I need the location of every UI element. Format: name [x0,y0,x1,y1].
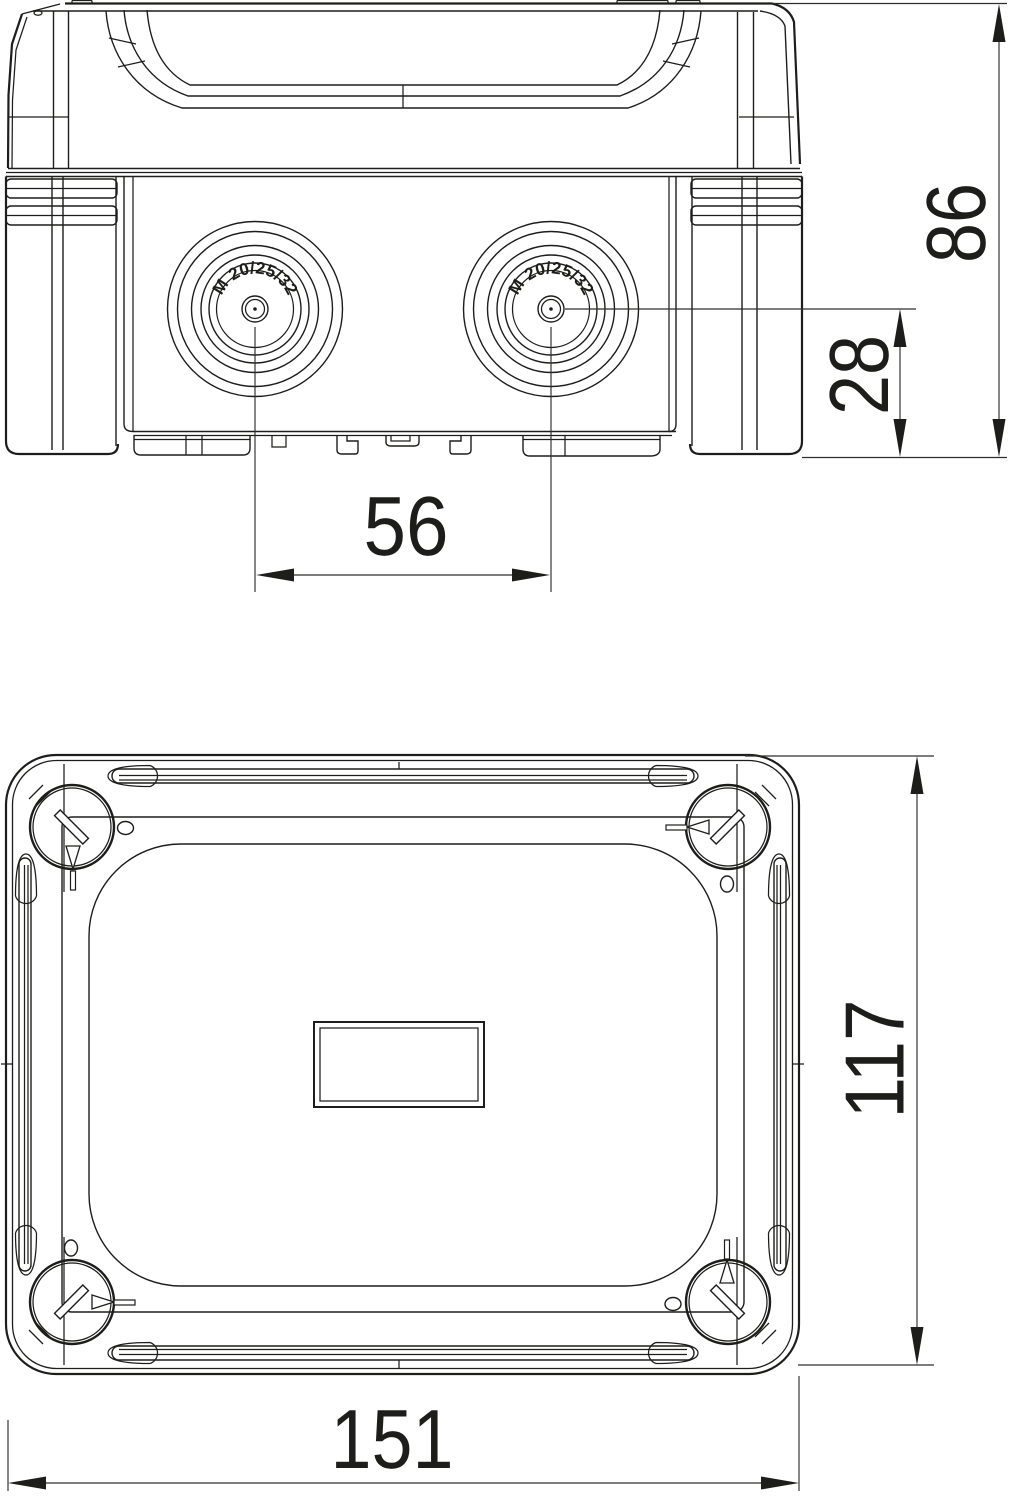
svg-text:28: 28 [812,335,906,415]
svg-text:117: 117 [828,1000,922,1119]
svg-text:151: 151 [331,1392,454,1486]
svg-text:86: 86 [909,183,1003,263]
svg-text:56: 56 [364,479,449,573]
